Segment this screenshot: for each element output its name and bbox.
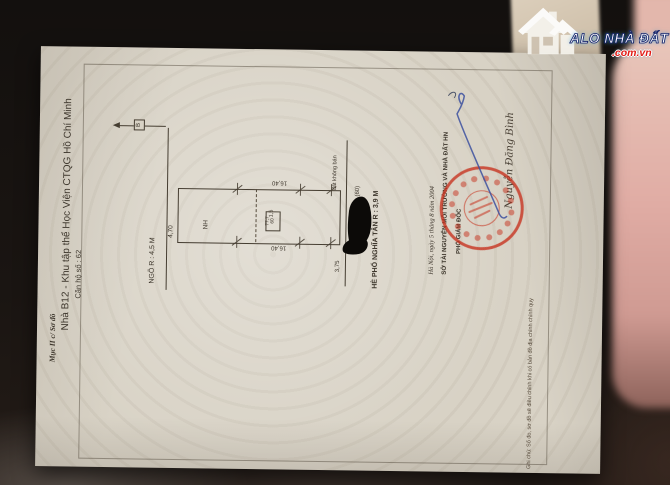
blurred-pink-object (612, 36, 670, 408)
ink-signature-stroke (35, 46, 606, 474)
brand-name: ALO NHÀ ĐẤT (570, 31, 669, 46)
watermark-brand-logo: ALO NHÀ ĐẤT .com.vn (516, 0, 670, 74)
cadastral-document-paper: Mục II c/ Sơ đồ Nhà B12 - Khu tập thể Họ… (35, 46, 606, 474)
brand-domain: .com.vn (612, 47, 652, 59)
